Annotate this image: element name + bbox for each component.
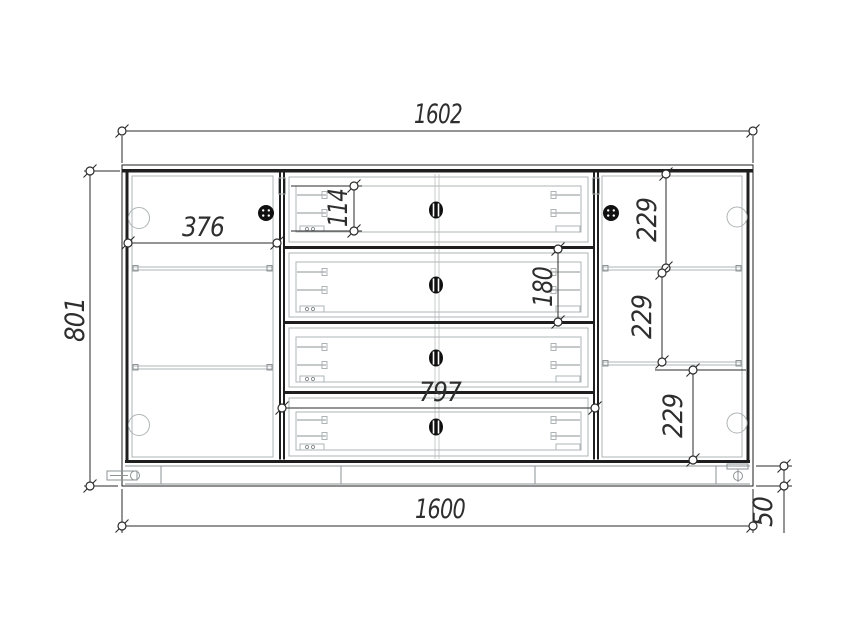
dim-marker (552, 243, 565, 256)
drawer-knob-icon (429, 350, 443, 367)
dim-right-section-middle: 229 (627, 267, 669, 369)
left-shelf-lower (133, 365, 272, 371)
dim-top-drawer-height: 114 (291, 180, 362, 238)
dim-right-section-bottom: 229 (655, 364, 746, 467)
dim-label-second-drawer-height: 180 (528, 267, 559, 307)
dim-marker (122, 237, 135, 250)
dim-marker (778, 480, 791, 493)
hinge-icon (727, 413, 747, 433)
dim-marker (84, 165, 97, 178)
door-knob-icon (258, 205, 274, 221)
drawer-knob-icon (429, 419, 443, 436)
drawer-separator (285, 321, 593, 324)
dim-marker (276, 402, 289, 415)
dim-right-section-top: 229 (632, 168, 673, 275)
dim-marker (778, 460, 791, 473)
divider-left (279, 173, 286, 460)
top-panel (122, 169, 753, 173)
drawer-separator (285, 246, 593, 249)
drawer-knob-icon (429, 277, 443, 294)
dim-label-right-section-middle: 229 (627, 295, 658, 339)
drawing-sheet: 1602 801 376 114 180 (0, 0, 856, 642)
dim-marker (271, 237, 284, 250)
right-shelf-upper (603, 266, 741, 272)
dim-overall-width: 1602 (116, 99, 760, 163)
divider-right (593, 173, 600, 460)
hinge-icon (727, 207, 747, 227)
dim-label-right-section-top: 229 (632, 198, 663, 242)
dim-label-overall-height: 801 (60, 298, 91, 342)
dim-marker (589, 402, 602, 415)
dim-marker (116, 520, 129, 533)
dim-second-drawer-height: 180 (528, 243, 565, 329)
dim-marker (687, 454, 700, 467)
dim-label-top-drawer-height: 114 (323, 189, 354, 227)
dim-label-base-width: 1600 (415, 494, 465, 525)
dim-label-left-door-width: 376 (182, 212, 224, 243)
dim-label-plinth-height: 50 (748, 497, 779, 527)
cabinet-technical-drawing: 1602 801 376 114 180 (0, 0, 856, 642)
dim-overall-height: 801 (60, 165, 120, 493)
dim-marker (656, 267, 669, 280)
left-shelf-upper (133, 266, 272, 272)
dim-marker (656, 356, 669, 369)
dim-label-drawer-bank-width: 797 (419, 377, 462, 408)
dim-marker (747, 125, 760, 138)
right-shelf-lower (603, 361, 741, 367)
dim-marker (116, 125, 129, 138)
door-knob-icon (603, 205, 619, 221)
dim-plinth-height: 50 (748, 460, 792, 534)
dim-marker (84, 480, 97, 493)
plinth (107, 464, 748, 484)
left-side-panel (126, 172, 129, 463)
adjustable-foot-left (107, 471, 140, 480)
dim-label-overall-width: 1602 (414, 99, 462, 130)
dimensions: 1602 801 376 114 180 (60, 99, 792, 533)
bottom-panel (125, 460, 750, 463)
dim-base-width: 1600 (116, 489, 760, 533)
adjustable-foot-right (727, 464, 748, 482)
drawer-knob-icon (429, 202, 443, 219)
dim-label-right-section-bottom: 229 (658, 394, 689, 438)
dim-left-door-width: 376 (122, 212, 284, 250)
